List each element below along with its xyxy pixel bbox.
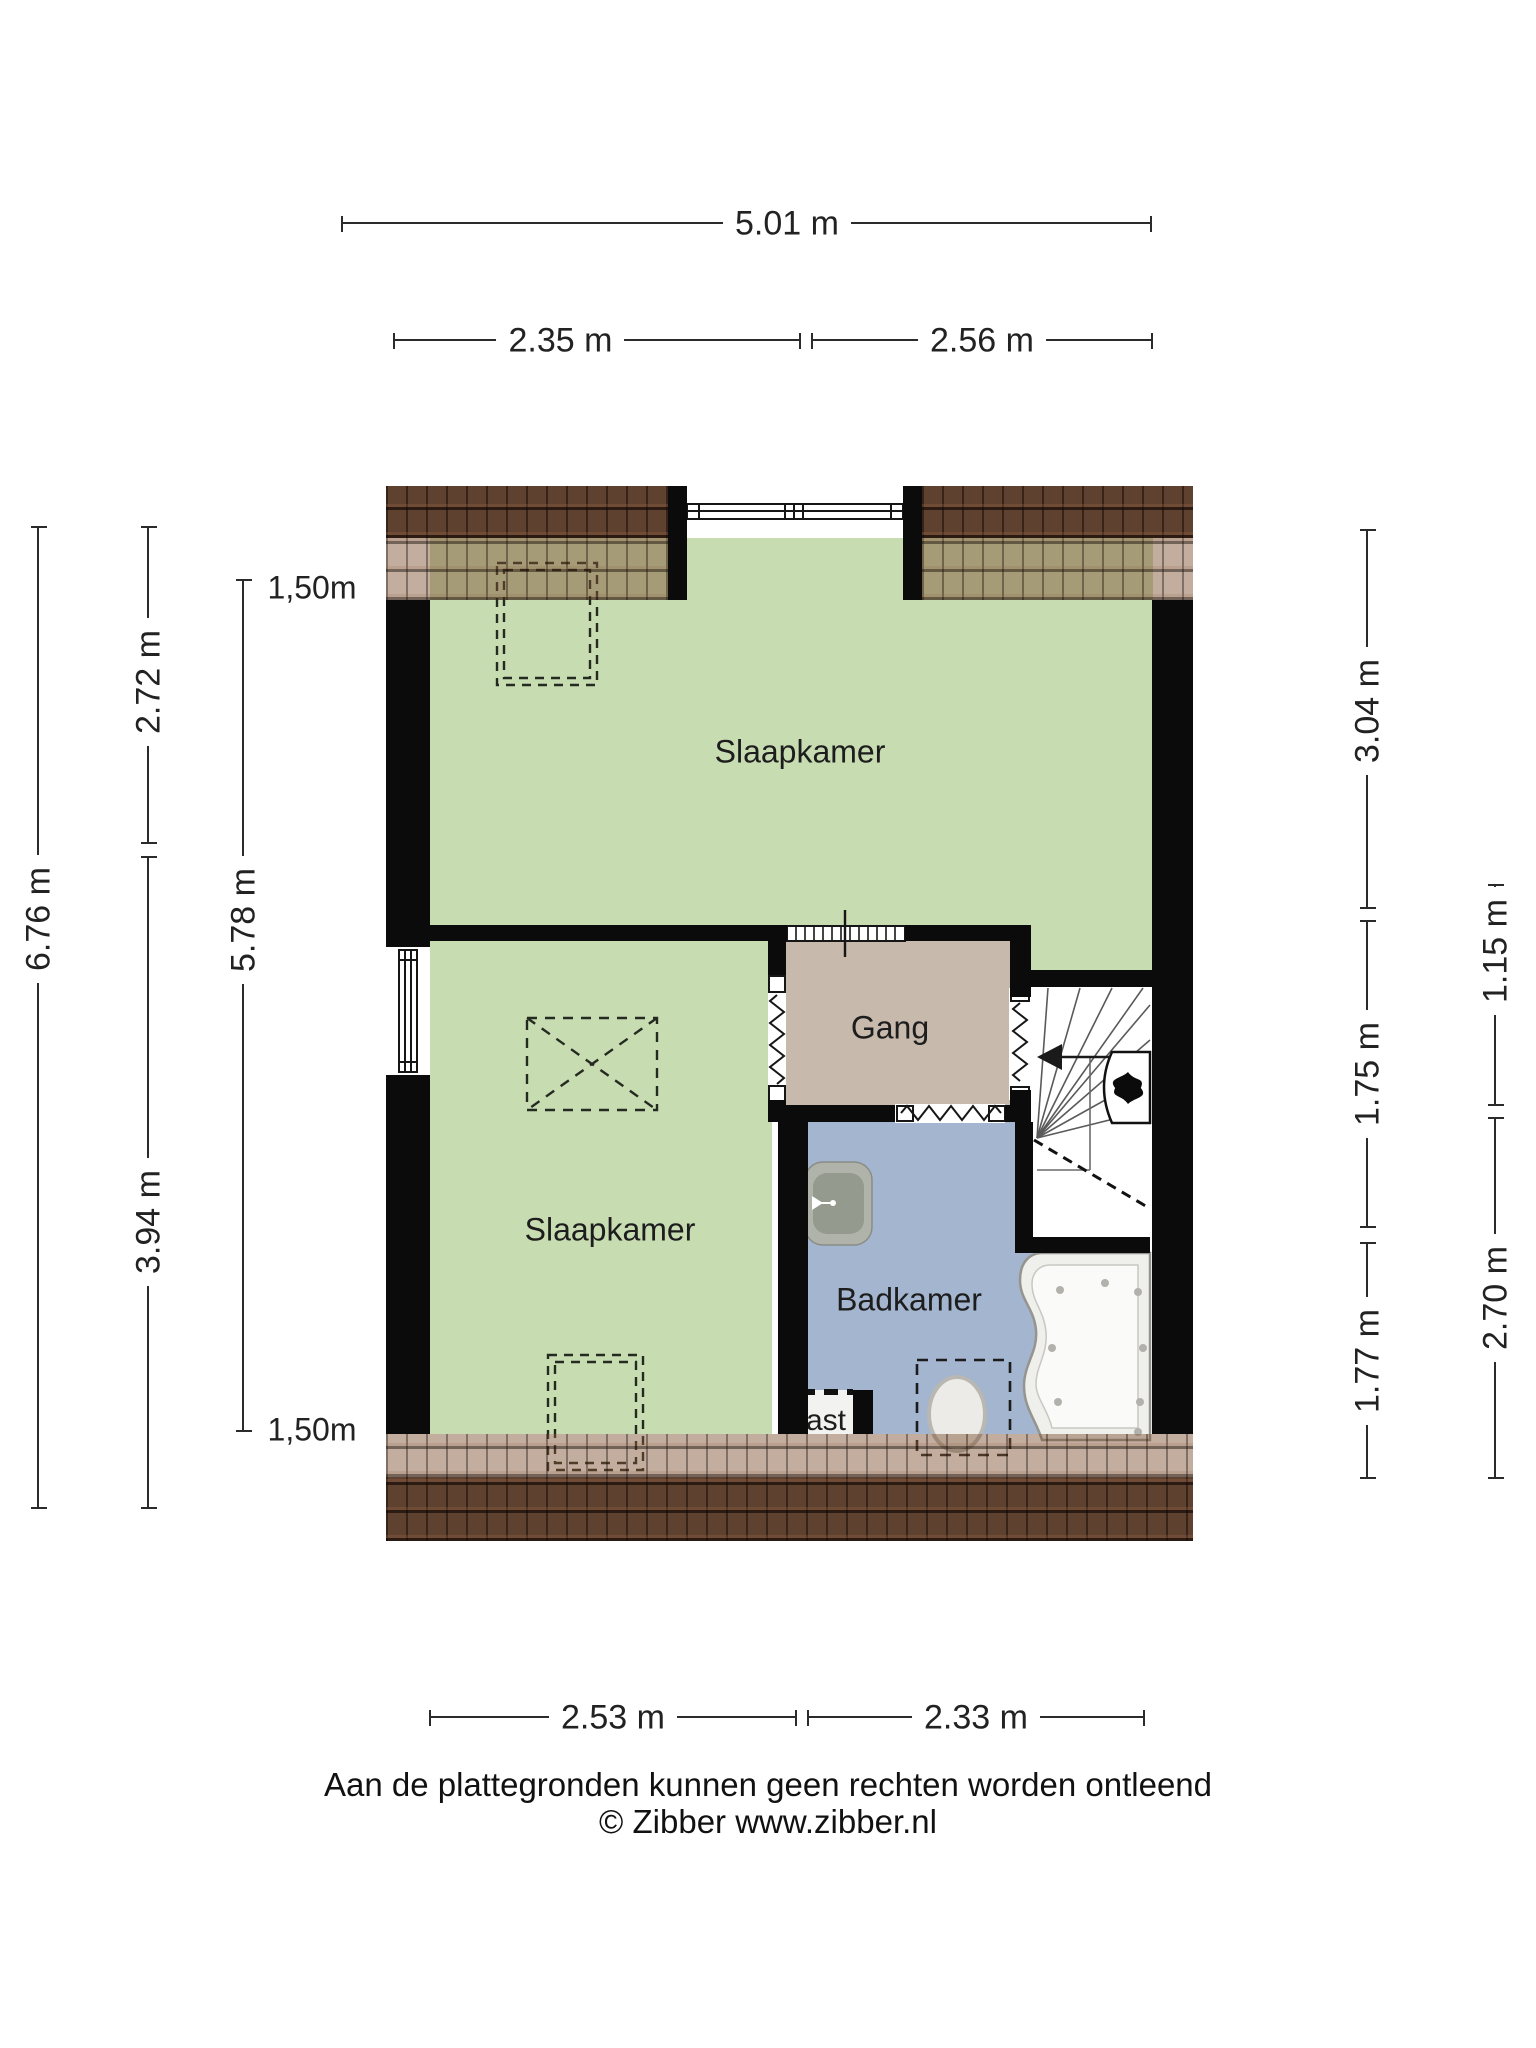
- roof-top-left: [386, 486, 668, 538]
- room-label-bedroom-top: Slaapkamer: [715, 734, 886, 771]
- wall-mid-west: [430, 925, 787, 941]
- roof-bottom: [386, 1477, 1193, 1541]
- wall-pillar-window-left: [668, 486, 687, 600]
- wall-hall-bottom-west: [786, 1105, 895, 1122]
- roof-top-right-translucent: [922, 538, 1193, 600]
- wall-pillar-window-right: [903, 486, 922, 600]
- window-top-icon: [687, 504, 903, 519]
- wall-bedroom-bathroom: [778, 1117, 808, 1434]
- door-zigzag-hall-bedroom-icon: [769, 976, 785, 1102]
- wall-stairs-left: [1015, 1122, 1033, 1253]
- wall-hall-right-lower: [1010, 1090, 1031, 1106]
- roof-bottom-translucent: [386, 1434, 1193, 1477]
- floorplan-page: 5.01 m 2.35 m 2.56 m 2.53 m 2.33 m 6.76 …: [0, 0, 1536, 2048]
- window-left-icon: [399, 950, 417, 1072]
- room-label-bathroom: Badkamer: [836, 1282, 982, 1319]
- wall-hall-left-upper: [768, 941, 786, 975]
- wall-stairs-top: [1018, 970, 1152, 987]
- door-threshold-hall-top-bedroom-icon: [787, 910, 905, 957]
- wall-mid-east: [905, 925, 1010, 941]
- roof-top-left-translucent: [386, 538, 668, 600]
- wall-stairs-bottom: [1015, 1237, 1150, 1253]
- room-label-bedroom-bottom: Slaapkamer: [525, 1212, 696, 1249]
- roof-top-right: [922, 486, 1193, 538]
- door-zigzag-hall-stairs-icon: [1011, 988, 1029, 1100]
- wall-right: [1152, 600, 1193, 1434]
- bed-bottom-bedroom: [527, 1018, 657, 1110]
- room-label-hallway: Gang: [851, 1010, 929, 1047]
- wall-closet-right: [853, 1390, 873, 1434]
- floorplan-lineart: [0, 0, 1536, 2048]
- wall-hall-bottom-east: [1005, 1105, 1031, 1122]
- bathtub-icon: [1020, 1253, 1150, 1440]
- wall-left-upper: [386, 600, 430, 947]
- washbasin-icon: [805, 1162, 872, 1245]
- door-zigzag-hall-bathroom-icon: [897, 1106, 1005, 1121]
- stairs-cut-line: [1034, 1140, 1149, 1208]
- wall-left-lower: [386, 1075, 430, 1434]
